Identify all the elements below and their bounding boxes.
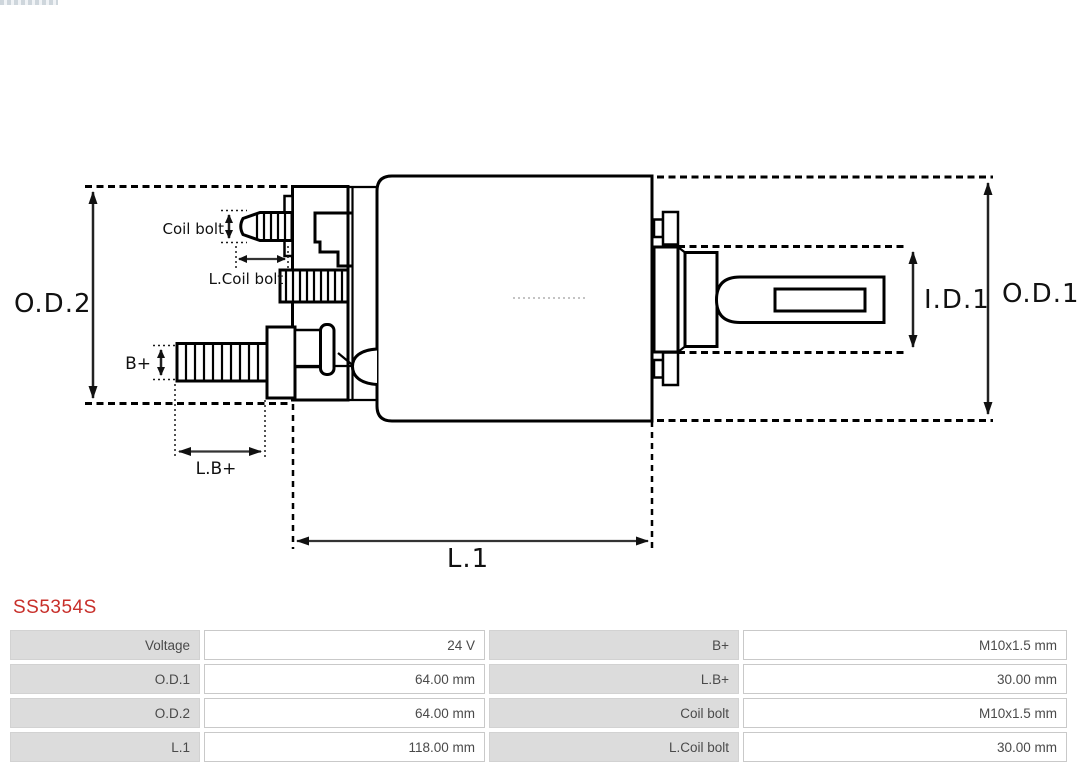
- part-number: SS5354S: [13, 597, 97, 619]
- spec-value-cell: 118.00 mm: [204, 732, 485, 762]
- spec-value-cell: M10x1.5 mm: [743, 698, 1067, 728]
- coil-bolt-label: Coil bolt: [162, 220, 224, 238]
- spec-value-cell: 64.00 mm: [204, 698, 485, 728]
- plunger-assembly: [654, 247, 884, 352]
- spec-label-cell: B+: [489, 630, 739, 660]
- od1-label: O.D.1: [1002, 279, 1080, 309]
- l1-label: L.1: [447, 544, 489, 574]
- spec-value-cell: 24 V: [204, 630, 485, 660]
- specs-table: Voltage 24 V B+ M10x1.5 mm O.D.1 64.00 m…: [10, 630, 1067, 762]
- l-coil-bolt-label: L.Coil bolt: [209, 270, 284, 288]
- bracket-notch: [353, 349, 378, 385]
- spec-label-cell: O.D.1: [10, 664, 200, 694]
- od2-label: O.D.2: [14, 289, 92, 319]
- spec-value-cell: M10x1.5 mm: [743, 630, 1067, 660]
- spec-label-cell: L.B+: [489, 664, 739, 694]
- b-plus-dimension: B+: [125, 346, 175, 380]
- l-b-plus-dimension: L.B+: [175, 384, 265, 479]
- coil-thread-bushing: [280, 270, 348, 302]
- spec-label-cell: L.Coil bolt: [489, 732, 739, 762]
- b-plus-washer: [321, 325, 335, 375]
- solenoid-technical-drawing: Coil bolt L.Coil bolt B+ L.B+: [0, 0, 1080, 592]
- spec-value-cell: 30.00 mm: [743, 732, 1067, 762]
- b-plus-nut: [267, 327, 295, 398]
- coil-bolt-dimension: Coil bolt: [162, 211, 247, 243]
- spec-label-cell: O.D.2: [10, 698, 200, 728]
- l-coil-bolt-dimension: L.Coil bolt: [209, 246, 288, 288]
- plunger-slot: [775, 289, 865, 311]
- l-b-plus-label: L.B+: [196, 459, 237, 479]
- spec-label-cell: L.1: [10, 732, 200, 762]
- b-plus-label: B+: [125, 354, 151, 374]
- spec-value-cell: 64.00 mm: [204, 664, 485, 694]
- spec-label-cell: Coil bolt: [489, 698, 739, 728]
- l1-dimension: L.1: [293, 404, 652, 574]
- spec-value-cell: 30.00 mm: [743, 664, 1067, 694]
- coil-bolt-terminal: [241, 213, 292, 241]
- id1-label: I.D.1: [924, 285, 990, 315]
- spec-label-cell: Voltage: [10, 630, 200, 660]
- plunger-collar: [685, 253, 717, 347]
- solenoid-body: [377, 176, 652, 421]
